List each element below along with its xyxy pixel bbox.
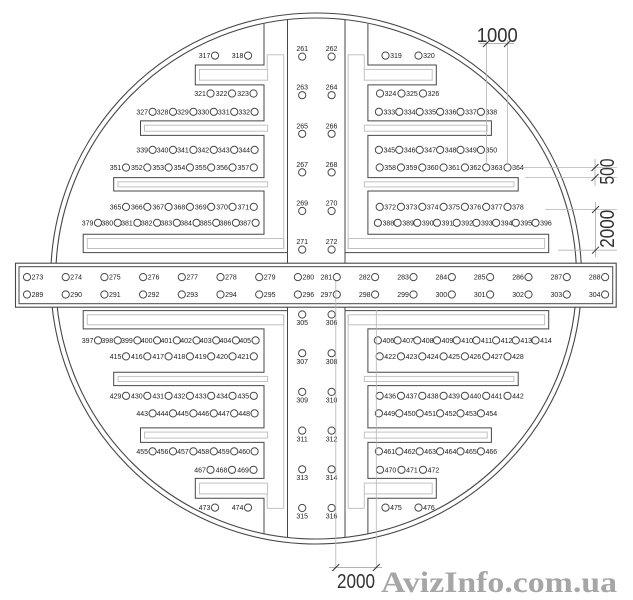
svg-text:298: 298	[359, 292, 371, 299]
svg-text:470: 470	[385, 467, 397, 474]
svg-text:416: 416	[131, 354, 143, 361]
svg-text:357: 357	[238, 165, 250, 172]
svg-text:409: 409	[442, 338, 454, 345]
svg-text:400: 400	[141, 338, 153, 345]
svg-text:466: 466	[486, 449, 498, 456]
svg-text:452: 452	[445, 411, 457, 418]
svg-text:443: 443	[136, 411, 148, 418]
svg-text:339: 339	[136, 148, 148, 155]
svg-text:420: 420	[216, 354, 228, 361]
svg-text:449: 449	[384, 411, 396, 418]
svg-text:275: 275	[109, 275, 121, 282]
svg-text:381: 381	[121, 220, 133, 227]
svg-text:421: 421	[238, 354, 250, 361]
svg-text:394: 394	[501, 220, 513, 227]
svg-text:319: 319	[390, 53, 402, 60]
svg-text:311: 311	[297, 436, 308, 443]
svg-text:288: 288	[589, 275, 601, 282]
svg-text:303: 303	[551, 292, 563, 299]
svg-text:AvizInfo.com.ua: AvizInfo.com.ua	[381, 566, 617, 599]
svg-text:325: 325	[406, 91, 418, 98]
svg-text:476: 476	[423, 505, 435, 512]
svg-text:291: 291	[109, 292, 121, 299]
svg-text:273: 273	[32, 275, 44, 282]
svg-text:359: 359	[406, 165, 418, 172]
svg-text:378: 378	[512, 205, 524, 212]
svg-text:285: 285	[474, 275, 486, 282]
svg-text:441: 441	[491, 393, 503, 400]
svg-text:380: 380	[101, 220, 113, 227]
svg-text:403: 403	[200, 338, 212, 345]
svg-text:464: 464	[445, 449, 457, 456]
svg-text:346: 346	[404, 148, 416, 155]
svg-text:455: 455	[136, 449, 148, 456]
svg-text:295: 295	[264, 292, 276, 299]
svg-text:318: 318	[232, 53, 244, 60]
svg-text:264: 264	[326, 85, 338, 92]
svg-text:353: 353	[152, 165, 164, 172]
svg-text:367: 367	[152, 205, 164, 212]
svg-text:406: 406	[383, 338, 395, 345]
svg-text:447: 447	[218, 411, 230, 418]
svg-text:356: 356	[216, 165, 228, 172]
svg-text:429: 429	[110, 393, 122, 400]
svg-text:323: 323	[237, 91, 249, 98]
svg-text:435: 435	[238, 393, 250, 400]
svg-text:430: 430	[131, 393, 143, 400]
svg-text:438: 438	[427, 393, 439, 400]
svg-text:294: 294	[225, 292, 237, 299]
svg-text:468: 468	[216, 467, 228, 474]
svg-text:361: 361	[448, 165, 460, 172]
svg-text:321: 321	[194, 91, 206, 98]
svg-text:315: 315	[296, 514, 308, 521]
svg-text:404: 404	[220, 338, 232, 345]
svg-text:360: 360	[427, 165, 439, 172]
svg-text:354: 354	[174, 165, 186, 172]
svg-text:349: 349	[465, 148, 477, 155]
svg-text:267: 267	[296, 162, 308, 169]
svg-text:418: 418	[174, 354, 186, 361]
svg-text:411: 411	[481, 338, 492, 345]
svg-text:280: 280	[303, 275, 315, 282]
svg-text:424: 424	[427, 354, 439, 361]
svg-text:473: 473	[199, 505, 211, 512]
svg-text:289: 289	[32, 292, 44, 299]
svg-text:417: 417	[152, 354, 164, 361]
svg-text:365: 365	[110, 205, 122, 212]
svg-text:343: 343	[218, 148, 230, 155]
svg-text:428: 428	[512, 354, 524, 361]
svg-text:363: 363	[491, 165, 503, 172]
svg-text:471: 471	[406, 467, 418, 474]
svg-text:454: 454	[486, 411, 498, 418]
svg-text:344: 344	[238, 148, 250, 155]
svg-text:262: 262	[326, 46, 338, 53]
svg-text:392: 392	[461, 220, 473, 227]
svg-text:469: 469	[237, 467, 249, 474]
svg-text:272: 272	[326, 239, 338, 246]
svg-text:336: 336	[445, 109, 457, 116]
svg-text:437: 437	[406, 393, 418, 400]
svg-text:422: 422	[384, 354, 396, 361]
svg-text:382: 382	[141, 220, 153, 227]
svg-text:345: 345	[384, 148, 396, 155]
svg-text:391: 391	[442, 220, 454, 227]
svg-text:335: 335	[424, 109, 436, 116]
svg-text:364: 364	[512, 165, 524, 172]
svg-text:351: 351	[110, 165, 122, 172]
svg-text:300: 300	[436, 292, 448, 299]
svg-text:328: 328	[157, 109, 169, 116]
svg-text:309: 309	[296, 398, 308, 405]
svg-text:358: 358	[384, 165, 396, 172]
svg-text:461: 461	[384, 449, 396, 456]
svg-text:322: 322	[216, 91, 228, 98]
svg-text:467: 467	[194, 467, 206, 474]
svg-text:373: 373	[406, 205, 418, 212]
svg-text:368: 368	[174, 205, 186, 212]
svg-text:270: 270	[326, 201, 338, 208]
svg-text:427: 427	[491, 354, 503, 361]
svg-text:390: 390	[422, 220, 434, 227]
svg-text:326: 326	[428, 91, 440, 98]
svg-text:436: 436	[384, 393, 396, 400]
svg-text:282: 282	[359, 275, 371, 282]
svg-text:451: 451	[424, 411, 436, 418]
svg-text:281: 281	[321, 275, 333, 282]
svg-text:396: 396	[540, 220, 552, 227]
svg-text:388: 388	[383, 220, 395, 227]
svg-text:399: 399	[121, 338, 133, 345]
svg-text:401: 401	[161, 338, 173, 345]
svg-text:448: 448	[238, 411, 250, 418]
svg-text:327: 327	[136, 109, 148, 116]
svg-text:384: 384	[180, 220, 192, 227]
svg-text:263: 263	[296, 85, 308, 92]
svg-text:460: 460	[238, 449, 250, 456]
svg-text:350: 350	[486, 148, 498, 155]
svg-text:296: 296	[303, 292, 315, 299]
svg-text:342: 342	[198, 148, 210, 155]
svg-text:440: 440	[470, 393, 482, 400]
svg-text:302: 302	[512, 292, 524, 299]
svg-text:457: 457	[177, 449, 189, 456]
svg-text:475: 475	[390, 505, 402, 512]
svg-text:279: 279	[264, 275, 276, 282]
svg-text:456: 456	[157, 449, 169, 456]
svg-text:2000: 2000	[337, 571, 375, 593]
svg-text:383: 383	[161, 220, 173, 227]
svg-text:276: 276	[148, 275, 160, 282]
svg-text:313: 313	[296, 475, 308, 482]
svg-text:284: 284	[436, 275, 448, 282]
svg-text:463: 463	[424, 449, 436, 456]
svg-text:304: 304	[589, 292, 601, 299]
svg-text:292: 292	[148, 292, 160, 299]
svg-text:290: 290	[70, 292, 82, 299]
svg-text:407: 407	[402, 338, 414, 345]
svg-text:2000: 2000	[597, 210, 619, 248]
svg-text:414: 414	[540, 338, 552, 345]
svg-text:269: 269	[296, 201, 308, 208]
svg-text:337: 337	[465, 109, 477, 116]
svg-text:320: 320	[423, 53, 435, 60]
svg-text:287: 287	[551, 275, 563, 282]
svg-text:299: 299	[397, 292, 409, 299]
svg-text:426: 426	[470, 354, 482, 361]
svg-text:398: 398	[101, 338, 113, 345]
svg-text:293: 293	[186, 292, 198, 299]
svg-text:355: 355	[195, 165, 207, 172]
svg-text:283: 283	[397, 275, 409, 282]
svg-text:459: 459	[218, 449, 230, 456]
svg-text:395: 395	[520, 220, 532, 227]
svg-text:386: 386	[220, 220, 232, 227]
svg-text:307: 307	[296, 359, 308, 366]
svg-text:405: 405	[239, 338, 251, 345]
svg-text:268: 268	[326, 162, 338, 169]
svg-text:347: 347	[424, 148, 436, 155]
svg-text:439: 439	[448, 393, 460, 400]
svg-text:387: 387	[239, 220, 251, 227]
svg-text:374: 374	[427, 205, 439, 212]
svg-text:450: 450	[404, 411, 416, 418]
svg-text:453: 453	[465, 411, 477, 418]
svg-text:379: 379	[82, 220, 94, 227]
svg-text:425: 425	[448, 354, 460, 361]
svg-text:277: 277	[186, 275, 198, 282]
svg-text:444: 444	[157, 411, 169, 418]
svg-text:412: 412	[501, 338, 513, 345]
svg-text:472: 472	[428, 467, 440, 474]
svg-text:423: 423	[406, 354, 418, 361]
svg-text:334: 334	[404, 109, 416, 116]
svg-text:419: 419	[195, 354, 207, 361]
svg-text:415: 415	[110, 354, 122, 361]
svg-text:331: 331	[218, 109, 230, 116]
svg-text:305: 305	[296, 320, 308, 327]
svg-text:301: 301	[474, 292, 486, 299]
svg-text:265: 265	[296, 123, 308, 130]
svg-text:462: 462	[404, 449, 416, 456]
svg-text:413: 413	[520, 338, 532, 345]
svg-text:278: 278	[225, 275, 237, 282]
svg-text:402: 402	[180, 338, 192, 345]
svg-text:432: 432	[174, 393, 186, 400]
svg-text:385: 385	[200, 220, 212, 227]
svg-text:500: 500	[597, 159, 619, 185]
svg-text:371: 371	[238, 205, 250, 212]
svg-text:369: 369	[195, 205, 207, 212]
svg-text:271: 271	[296, 239, 308, 246]
svg-text:362: 362	[470, 165, 482, 172]
svg-text:474: 474	[232, 505, 244, 512]
svg-text:341: 341	[177, 148, 189, 155]
svg-text:375: 375	[448, 205, 460, 212]
svg-text:389: 389	[402, 220, 414, 227]
svg-text:324: 324	[385, 91, 397, 98]
svg-text:377: 377	[491, 205, 503, 212]
svg-text:330: 330	[198, 109, 210, 116]
svg-text:393: 393	[481, 220, 493, 227]
svg-text:366: 366	[131, 205, 143, 212]
svg-text:458: 458	[198, 449, 210, 456]
svg-text:317: 317	[199, 53, 211, 60]
svg-text:370: 370	[216, 205, 228, 212]
svg-text:397: 397	[82, 338, 94, 345]
svg-text:274: 274	[70, 275, 82, 282]
svg-text:446: 446	[198, 411, 210, 418]
svg-text:266: 266	[326, 123, 338, 130]
svg-text:408: 408	[422, 338, 434, 345]
svg-text:352: 352	[131, 165, 143, 172]
svg-text:340: 340	[157, 148, 169, 155]
svg-text:286: 286	[512, 275, 524, 282]
svg-text:433: 433	[195, 393, 207, 400]
svg-text:333: 333	[384, 109, 396, 116]
svg-text:329: 329	[177, 109, 189, 116]
svg-text:442: 442	[512, 393, 524, 400]
svg-text:465: 465	[465, 449, 477, 456]
svg-text:1000: 1000	[477, 25, 518, 47]
svg-text:372: 372	[384, 205, 396, 212]
svg-text:445: 445	[177, 411, 189, 418]
svg-text:348: 348	[445, 148, 457, 155]
svg-text:434: 434	[216, 393, 228, 400]
svg-text:261: 261	[296, 46, 308, 53]
svg-text:332: 332	[238, 109, 250, 116]
svg-text:431: 431	[152, 393, 164, 400]
svg-text:297: 297	[321, 292, 333, 299]
svg-text:410: 410	[461, 338, 473, 345]
svg-text:338: 338	[486, 109, 498, 116]
svg-text:376: 376	[470, 205, 482, 212]
